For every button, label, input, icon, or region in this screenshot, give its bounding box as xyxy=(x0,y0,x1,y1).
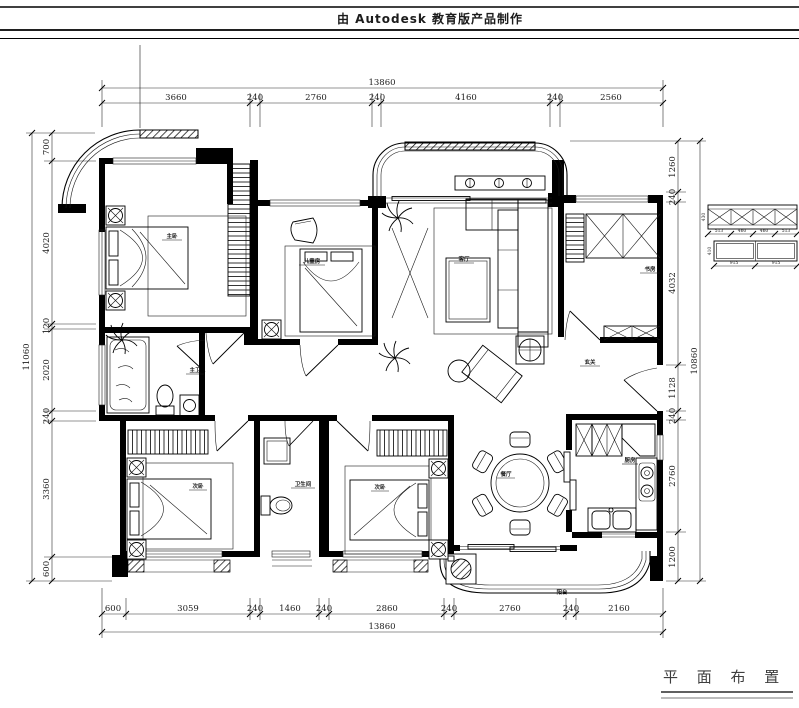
bed xyxy=(350,480,429,540)
dim-bot-4: 1460 xyxy=(279,604,301,614)
dining-table xyxy=(491,454,549,512)
detail-dim-2: 460 xyxy=(738,228,747,234)
dim-left-4: 2020 xyxy=(42,359,52,381)
dim-top-2: 240 xyxy=(247,93,263,103)
dim-right-total: 10860 xyxy=(690,347,700,374)
entry-door xyxy=(624,368,657,411)
rug xyxy=(143,463,233,549)
dim-left-2: 4020 xyxy=(42,232,52,254)
detail-dim-3: 460 xyxy=(760,228,769,234)
detail-lower-band: 915 915 410 xyxy=(707,241,799,269)
balcony-living xyxy=(373,142,567,203)
dim-right-7: 1200 xyxy=(668,546,678,568)
room-label-bath2: 卫生间 xyxy=(295,480,312,488)
dim-top-3: 2760 xyxy=(305,93,327,103)
dim-left-6: 3360 xyxy=(42,478,52,500)
toilet xyxy=(261,496,292,515)
dim-top-total: 13860 xyxy=(368,78,395,88)
balcony-top-left xyxy=(62,130,198,208)
detail-dim-4: 513 xyxy=(782,228,791,234)
stool xyxy=(448,360,470,382)
dim-bot-10: 2160 xyxy=(608,604,630,614)
bathtub xyxy=(107,337,149,413)
dim-right-6: 2760 xyxy=(668,465,678,487)
washing-machine xyxy=(446,554,476,584)
dim-bot-2: 3059 xyxy=(177,604,199,614)
dim-bot-3: 240 xyxy=(247,604,263,614)
dim-bottom-total: 13860 xyxy=(368,622,395,632)
dim-top-5: 4160 xyxy=(455,93,477,103)
room-label-master: 主卧 xyxy=(166,232,178,240)
wardrobe xyxy=(377,430,447,456)
study-door xyxy=(565,311,600,340)
detail-dim-side1: 430 xyxy=(701,213,707,222)
title-text: 平 面 布 置 图 xyxy=(663,668,799,686)
master-door xyxy=(206,333,244,364)
wardrobe xyxy=(586,214,660,258)
drawing-title: 平 面 布 置 图 xyxy=(661,668,799,698)
dim-left-7: 600 xyxy=(42,561,52,577)
bath2-door xyxy=(285,421,313,446)
shelf xyxy=(566,214,584,262)
room-kitchen: 厨房 xyxy=(564,424,657,532)
bedroom4-door xyxy=(337,421,370,451)
balcony-service: 阳台 xyxy=(440,551,650,596)
floorplan-drawing: 由 Autodesk 教育版产品制作 13860 3660 240 2760 2… xyxy=(0,0,799,708)
room-label-balcony: 阳台 xyxy=(556,588,568,596)
rug xyxy=(434,208,552,334)
dim-top-4: 240 xyxy=(369,93,385,103)
coffee-table xyxy=(446,258,490,322)
bedroom2-door xyxy=(300,345,338,376)
room-master-bath: 主卫 xyxy=(106,323,205,416)
room-bedroom2: 儿童房 xyxy=(262,218,375,376)
room-dining: 餐厅 xyxy=(471,432,569,535)
kitchen-sink xyxy=(588,508,636,532)
detail-dim-1: 513 xyxy=(715,228,724,234)
dim-left-total: 11060 xyxy=(22,343,32,370)
detail-dim-5: 915 xyxy=(730,260,739,266)
room-bath2: 卫生间 xyxy=(261,421,315,515)
dim-right-2: 240 xyxy=(668,189,678,205)
room-living: 客厅 xyxy=(379,200,552,403)
dim-right-4: 1128 xyxy=(668,377,678,399)
sofa xyxy=(466,200,548,347)
stove xyxy=(636,458,657,530)
dim-top-7: 2560 xyxy=(600,93,622,103)
room-foyer: 玄关 xyxy=(580,358,657,411)
balcony-planter xyxy=(455,176,545,190)
dim-right-3: 4032 xyxy=(668,272,678,294)
wardrobe xyxy=(228,164,250,296)
room-label-bedroom2: 儿童房 xyxy=(303,257,321,265)
bay-window-sills xyxy=(128,560,428,572)
banner-text: 由 Autodesk 教育版产品制作 xyxy=(337,11,523,26)
wardrobe xyxy=(128,430,208,454)
rug xyxy=(285,246,375,336)
dim-bot-9: 240 xyxy=(563,604,579,614)
kitchen-cabinets xyxy=(576,424,655,456)
dimension-left: 700 4020 120 2020 240 3360 600 11060 xyxy=(22,130,112,584)
sink xyxy=(264,438,290,464)
dimension-top: 13860 3660 240 2760 240 4160 240 2560 xyxy=(99,78,666,127)
armchair xyxy=(291,218,317,243)
dim-bot-1: 600 xyxy=(105,604,121,614)
room-label-kitchen: 厨房 xyxy=(624,456,636,464)
detail-upper-band: 513 460 460 513 430 xyxy=(701,205,799,237)
room-label-foyer: 玄关 xyxy=(584,358,596,366)
dim-top-6: 240 xyxy=(547,93,563,103)
side-table xyxy=(516,336,544,364)
toilet xyxy=(156,385,174,415)
railing-hatch xyxy=(140,130,198,138)
autodesk-education-banner: 由 Autodesk 教育版产品制作 xyxy=(0,7,799,39)
railing-hatch xyxy=(405,142,535,150)
room-bedroom3: 次卧 xyxy=(127,421,248,559)
sink xyxy=(180,395,199,416)
room-study: 书房 xyxy=(565,214,660,340)
dim-top-1: 3660 xyxy=(165,93,187,103)
room-label-bedroom3: 次卧 xyxy=(192,482,204,490)
tv-marker xyxy=(392,228,428,318)
dim-bot-6: 2860 xyxy=(376,604,398,614)
dim-bot-5: 240 xyxy=(316,604,332,614)
cad-floorplan-screenshot: 由 Autodesk 教育版产品制作 13860 3660 240 2760 2… xyxy=(0,0,799,708)
room-label-bedroom4: 次卧 xyxy=(374,483,386,491)
room-label-study: 书房 xyxy=(644,265,656,273)
room-label-living: 客厅 xyxy=(457,255,470,263)
cabinet-detail: 513 460 460 513 430 915 915 410 xyxy=(701,205,799,269)
floor-rug xyxy=(462,345,522,403)
room-label-dining: 餐厅 xyxy=(499,470,512,478)
room-bedroom4: 次卧 xyxy=(337,421,448,559)
detail-dim-6: 915 xyxy=(772,260,781,266)
rug xyxy=(345,466,431,554)
detail-dim-side2: 410 xyxy=(707,247,713,256)
dim-right-1: 1260 xyxy=(668,156,678,178)
bedroom3-door xyxy=(215,421,248,451)
dimension-bottom: 600 3059 240 1460 240 2860 240 2760 240 … xyxy=(99,588,666,638)
dim-bot-8: 2760 xyxy=(499,604,521,614)
dim-left-3: 120 xyxy=(42,318,52,334)
dim-left-5: 240 xyxy=(42,408,52,424)
dim-right-5: 240 xyxy=(668,408,678,424)
dim-bot-7: 240 xyxy=(441,604,457,614)
dim-left-1: 700 xyxy=(42,139,52,155)
